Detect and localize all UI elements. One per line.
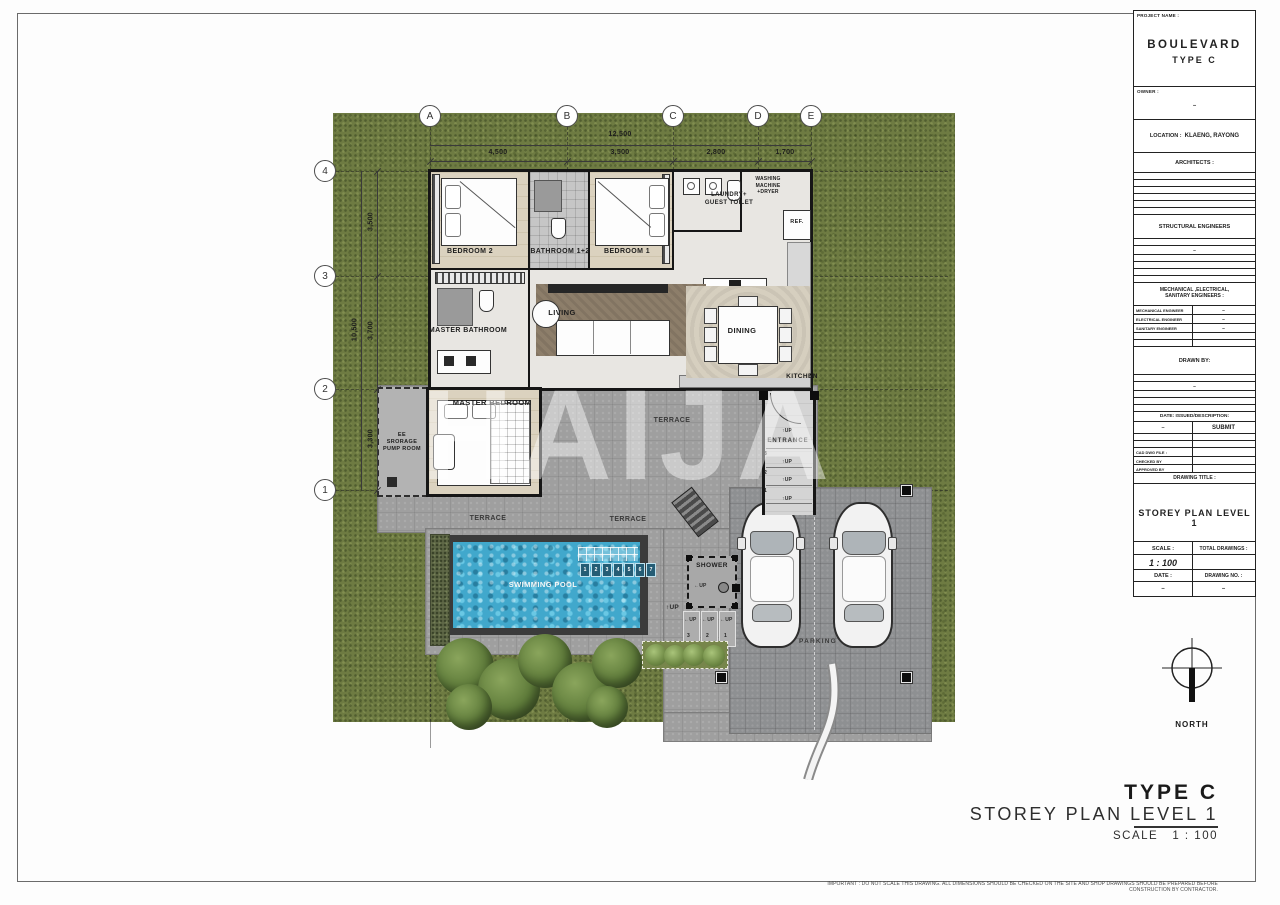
tb-divider	[1192, 457, 1193, 464]
tb-architects: ARCHITECTS :	[1134, 153, 1255, 173]
tb-empty-row	[1134, 194, 1255, 201]
built-in-closet	[435, 272, 525, 284]
bed-icon	[595, 178, 669, 246]
interior-wall	[672, 172, 674, 270]
sofa-cushion-line	[630, 321, 631, 354]
pillow	[445, 213, 461, 237]
grid-bubble-row-1: 1	[314, 479, 336, 501]
tb-divider	[1192, 555, 1193, 569]
grid-bubble-label: 2	[322, 384, 328, 395]
drawing-title: STOREY PLAN LEVEL 1	[1134, 508, 1255, 528]
tb-scale-header: SCALE : TOTAL DRAWINGS :	[1134, 542, 1255, 555]
washer-drum	[687, 182, 695, 190]
tree	[446, 684, 492, 730]
dim-top-total: 12,500	[580, 131, 660, 138]
tb-drawn-by: DRAWN BY:	[1134, 347, 1255, 375]
planter-box	[642, 641, 728, 669]
car-roof	[750, 556, 794, 602]
up-text: UP	[699, 583, 706, 589]
up-annotation: ←UP	[684, 617, 697, 623]
grid-bubble-column-c: C	[662, 105, 684, 127]
dimension-line-left-total	[361, 171, 362, 490]
carport-post	[716, 672, 727, 683]
tb-empty-row	[1134, 255, 1255, 262]
car-top-view	[833, 502, 893, 648]
tb-scale-value: 1 : 100	[1134, 555, 1255, 570]
dimension-line-top-total	[430, 145, 811, 146]
pool-step-number: 3	[602, 563, 612, 577]
grid-bubble-label: 3	[322, 271, 328, 282]
tb-divider	[1192, 333, 1193, 339]
tb-engineer-row: ELECTRICAL ENGINEER –	[1134, 315, 1255, 324]
tb-project: PROJECT NAME : BOULEVARD TYPE C	[1134, 11, 1255, 87]
grid-bubble-label: 1	[322, 485, 328, 496]
up-annotation: ←UP	[694, 583, 707, 589]
tb-owner: OWNER : –	[1134, 87, 1255, 120]
up-text: UP	[669, 604, 678, 611]
grid-bubble-label: D	[754, 111, 761, 122]
tb-structural: STRUCTURAL ENGINEERS	[1134, 215, 1255, 239]
drawing-sheet: 1 2 3 4 5 6 7	[0, 0, 1280, 905]
dining-chair	[779, 346, 792, 362]
up-annotation: ←UP	[720, 617, 733, 623]
room-label-terrace-lower-mid: TERRACE	[598, 515, 658, 524]
duvet-fold-line	[598, 181, 651, 228]
tb-engineer-row: MECHANICAL ENGINEER –	[1134, 306, 1255, 315]
drawn-by-label: DRAWN BY:	[1134, 358, 1255, 364]
grid-bubble-column-a: A	[419, 105, 441, 127]
dryer-drum	[709, 182, 717, 190]
dimension-line-top-segments	[430, 161, 811, 162]
scale-value: 1 : 100	[1134, 558, 1192, 568]
tb-empty-row	[1134, 333, 1255, 340]
grid-bubble-label: 4	[322, 166, 328, 177]
pool-planting-strip	[430, 534, 450, 646]
tb-divider	[1192, 434, 1193, 440]
drawing-no-value: –	[1192, 586, 1255, 592]
tb-cad-row: CAD DWG FILE :	[1134, 448, 1255, 457]
approved-by-label: APPROVED BY	[1136, 467, 1164, 472]
dim-top-segment: 1,700	[745, 149, 825, 156]
tb-empty-row	[1134, 391, 1255, 398]
tb-empty-row	[1134, 201, 1255, 208]
tb-divider	[1192, 448, 1193, 456]
tb-empty-row	[1134, 208, 1255, 215]
project-type: TYPE C	[1134, 55, 1255, 65]
outdoor-step-number: 2	[706, 633, 709, 639]
pillow	[649, 185, 665, 209]
location-label: LOCATION :	[1150, 133, 1182, 139]
tb-empty-row	[1134, 405, 1255, 412]
shower-corner-post	[686, 555, 692, 561]
car-mirror	[796, 537, 805, 550]
dim-top-segment: 4,500	[458, 149, 538, 156]
bed-icon	[441, 178, 517, 246]
room-label-terrace-lower-left: TERRACE	[458, 514, 518, 523]
engineer-label: MECHANICAL ENGINEER	[1136, 308, 1183, 313]
dim-left-total: 10,500	[352, 300, 359, 360]
toilet-icon	[551, 218, 566, 239]
pool-step-number: 5	[624, 563, 634, 577]
grid-bubble-column-b: B	[556, 105, 578, 127]
room-label-dining: DINING	[712, 326, 772, 336]
driveway-curve	[778, 648, 890, 780]
car-mirror	[829, 537, 838, 550]
room-label-ref: REF.	[783, 219, 811, 226]
tb-empty-row	[1134, 441, 1255, 448]
pillow	[445, 185, 461, 209]
tb-empty-row	[1134, 375, 1255, 382]
architects-label: ARCHITECTS :	[1134, 160, 1255, 166]
project-name: BOULEVARD	[1134, 39, 1255, 51]
tb-empty-row	[1134, 173, 1255, 180]
tb-empty-row	[1134, 398, 1255, 405]
date-value: –	[1134, 586, 1192, 592]
up-text: UP	[725, 617, 732, 623]
total-drawings-label: TOTAL DRAWINGS :	[1192, 546, 1255, 552]
pool-step-number: 2	[591, 563, 601, 577]
carport-post	[901, 485, 912, 496]
tb-empty-row	[1134, 276, 1255, 283]
tb-structural-value: –	[1134, 246, 1255, 255]
tb-empty-row	[1134, 269, 1255, 276]
title-block: PROJECT NAME : BOULEVARD TYPE C OWNER : …	[1133, 10, 1256, 597]
toilet-icon	[479, 290, 494, 312]
up-text: UP	[689, 617, 696, 623]
car-roof	[842, 556, 886, 602]
car-top-view	[741, 502, 801, 648]
engineer-label: ELECTRICAL ENGINEER	[1136, 317, 1182, 322]
tv-console	[548, 284, 668, 293]
outdoor-step-number: 1	[724, 633, 727, 639]
tb-empty-row	[1134, 434, 1255, 441]
engineer-value: –	[1192, 326, 1255, 332]
footer-type: TYPE C	[940, 781, 1218, 805]
location-value: KLAENG, RAYONG	[1185, 133, 1239, 139]
watermark: HAIJA	[408, 372, 848, 500]
scale-label: SCALE :	[1134, 546, 1192, 552]
duvet-fold-line	[460, 181, 516, 228]
room-label-shower: SHOWER	[687, 562, 737, 570]
dining-chair	[704, 308, 717, 324]
shower-wall-post	[732, 584, 740, 592]
tb-empty-row	[1134, 262, 1255, 269]
engineer-value: –	[1192, 317, 1255, 323]
pool-step-number: 7	[646, 563, 656, 577]
car-mirror	[888, 537, 897, 550]
pillow	[649, 213, 665, 237]
date-issued-label: DATE: ISSUED/DESCRIPTION:	[1134, 414, 1255, 419]
tb-empty-row	[1134, 340, 1255, 347]
car-rear-window	[844, 604, 884, 622]
disclaimer-note: IMPORTANT : DO NOT SCALE THIS DRAWING. A…	[820, 881, 1218, 893]
tb-date-value: – –	[1134, 582, 1255, 596]
sofa-icon	[556, 320, 670, 356]
pool-step-number: 1	[580, 563, 590, 577]
tb-date-issued-header: DATE: ISSUED/DESCRIPTION:	[1134, 412, 1255, 422]
tb-drawn-value: –	[1134, 382, 1255, 391]
engineer-label: SANITARY ENGINEER	[1136, 326, 1177, 331]
tb-empty-row	[1134, 180, 1255, 187]
shower-stall	[534, 180, 562, 212]
up-text: UP	[707, 617, 714, 623]
pump-icon	[387, 477, 397, 487]
footer-scale: SCALE 1 : 100	[1000, 830, 1218, 842]
carport-post	[901, 672, 912, 683]
grid-bubble-label: B	[564, 111, 571, 122]
issue-description: SUBMIT	[1192, 425, 1255, 431]
drawing-title-label: DRAWING TITLE :	[1134, 475, 1255, 481]
project-name-label: PROJECT NAME :	[1137, 13, 1179, 18]
tb-approved-row: APPROVED BY	[1134, 465, 1255, 473]
tb-engineer-row: SANITARY ENGINEER –	[1134, 324, 1255, 333]
footer-scale-value: 1 : 100	[1172, 830, 1218, 842]
footer-title: STOREY PLAN LEVEL 1	[900, 804, 1218, 825]
tb-drawing-title-header: DRAWING TITLE :	[1134, 473, 1255, 484]
car-windshield	[750, 531, 794, 555]
tb-divider	[1192, 340, 1193, 346]
dining-chair	[704, 346, 717, 362]
pool-steps-tiles	[578, 547, 638, 561]
dim-left-segment: 3,500	[368, 192, 375, 252]
dining-chair	[779, 308, 792, 324]
grid-bubble-row-2: 2	[314, 378, 336, 400]
tb-drawing-title: STOREY PLAN LEVEL 1	[1134, 484, 1255, 542]
tree	[586, 686, 628, 728]
bush	[703, 645, 725, 667]
tb-empty-row	[1134, 239, 1255, 246]
checked-by-label: CHECKED BY	[1136, 459, 1162, 464]
room-label-swimming-pool: SWIMMING POOL	[493, 580, 593, 590]
date-label: DATE :	[1134, 573, 1192, 579]
up-annotation: ↑UP	[666, 604, 679, 611]
shower-corner-post	[732, 555, 738, 561]
pool-step-number: 6	[635, 563, 645, 577]
room-label-bedroom1: BEDROOM 1	[587, 247, 667, 256]
up-annotation: ←UP	[702, 617, 715, 623]
shower-head-icon	[718, 582, 729, 593]
dim-left-segment: 3,700	[368, 301, 375, 361]
dining-chair	[779, 327, 792, 343]
owner-value: –	[1134, 103, 1255, 109]
drawing-no-label: DRAWING NO. :	[1192, 573, 1255, 579]
mes-label: MECHANICAL ,ELECTRICAL, SANITARY ENGINEE…	[1134, 287, 1255, 299]
drawn-by-value: –	[1134, 384, 1255, 390]
dim-left-segment: 3,300	[368, 409, 375, 469]
bush	[683, 644, 705, 666]
interior-wall	[431, 268, 674, 270]
grid-bubble-column-d: D	[747, 105, 769, 127]
dim-top-segment: 2,800	[676, 149, 756, 156]
tb-empty-row	[1134, 187, 1255, 194]
grid-bubble-label: E	[808, 111, 815, 122]
car-rear-window	[752, 604, 792, 622]
outdoor-step-number: 3	[687, 633, 690, 639]
owner-label: OWNER :	[1137, 89, 1159, 94]
structural-label: STRUCTURAL ENGINEERS	[1134, 224, 1255, 230]
footer-underline	[1134, 826, 1218, 828]
room-label-washing-machine: WASHING MACHINE +DRYER	[746, 176, 790, 196]
footer-scale-label: SCALE	[1113, 830, 1158, 842]
shower-corner-post	[686, 603, 692, 609]
tb-submit-row: – SUBMIT	[1134, 422, 1255, 434]
dim-top-segment: 3,500	[580, 149, 660, 156]
engineer-value: –	[1192, 308, 1255, 314]
tb-divider	[1192, 465, 1193, 472]
room-label-living: LIVING	[532, 308, 592, 318]
room-label-parking: PARKING	[778, 638, 858, 646]
north-label: NORTH	[1156, 720, 1228, 729]
tb-mes-header: MECHANICAL ,ELECTRICAL, SANITARY ENGINEE…	[1134, 283, 1255, 306]
structural-value: –	[1134, 248, 1255, 254]
tb-date-header: DATE : DRAWING NO. :	[1134, 570, 1255, 582]
tb-location: LOCATION : KLAENG, RAYONG	[1134, 120, 1255, 153]
issue-date: –	[1134, 425, 1192, 431]
car-mirror	[737, 537, 746, 550]
grid-bubble-label: A	[427, 111, 434, 122]
shower-corner-post	[732, 603, 738, 609]
grid-bubble-label: C	[669, 111, 676, 122]
grid-bubble-column-e: E	[800, 105, 822, 127]
interior-wall	[672, 230, 742, 232]
cad-file-label: CAD DWG FILE :	[1136, 450, 1167, 455]
tb-divider	[1192, 441, 1193, 447]
tb-checked-row: CHECKED BY	[1134, 457, 1255, 465]
gridline-column-a-extension	[430, 722, 431, 748]
room-label-bedroom2: BEDROOM 2	[430, 247, 510, 256]
pool-step-number: 4	[613, 563, 623, 577]
master-shower-stall	[437, 288, 473, 326]
grid-bubble-row-4: 4	[314, 160, 336, 182]
room-label-master-bathroom: MASTER BATHROOM	[418, 326, 518, 335]
car-windshield	[842, 531, 886, 555]
tree	[592, 638, 642, 688]
pool-step-numbers: 1 2 3 4 5 6 7	[580, 563, 656, 577]
grid-bubble-row-3: 3	[314, 265, 336, 287]
north-arrow-icon	[1156, 632, 1228, 718]
sofa-cushion-line	[593, 321, 594, 354]
